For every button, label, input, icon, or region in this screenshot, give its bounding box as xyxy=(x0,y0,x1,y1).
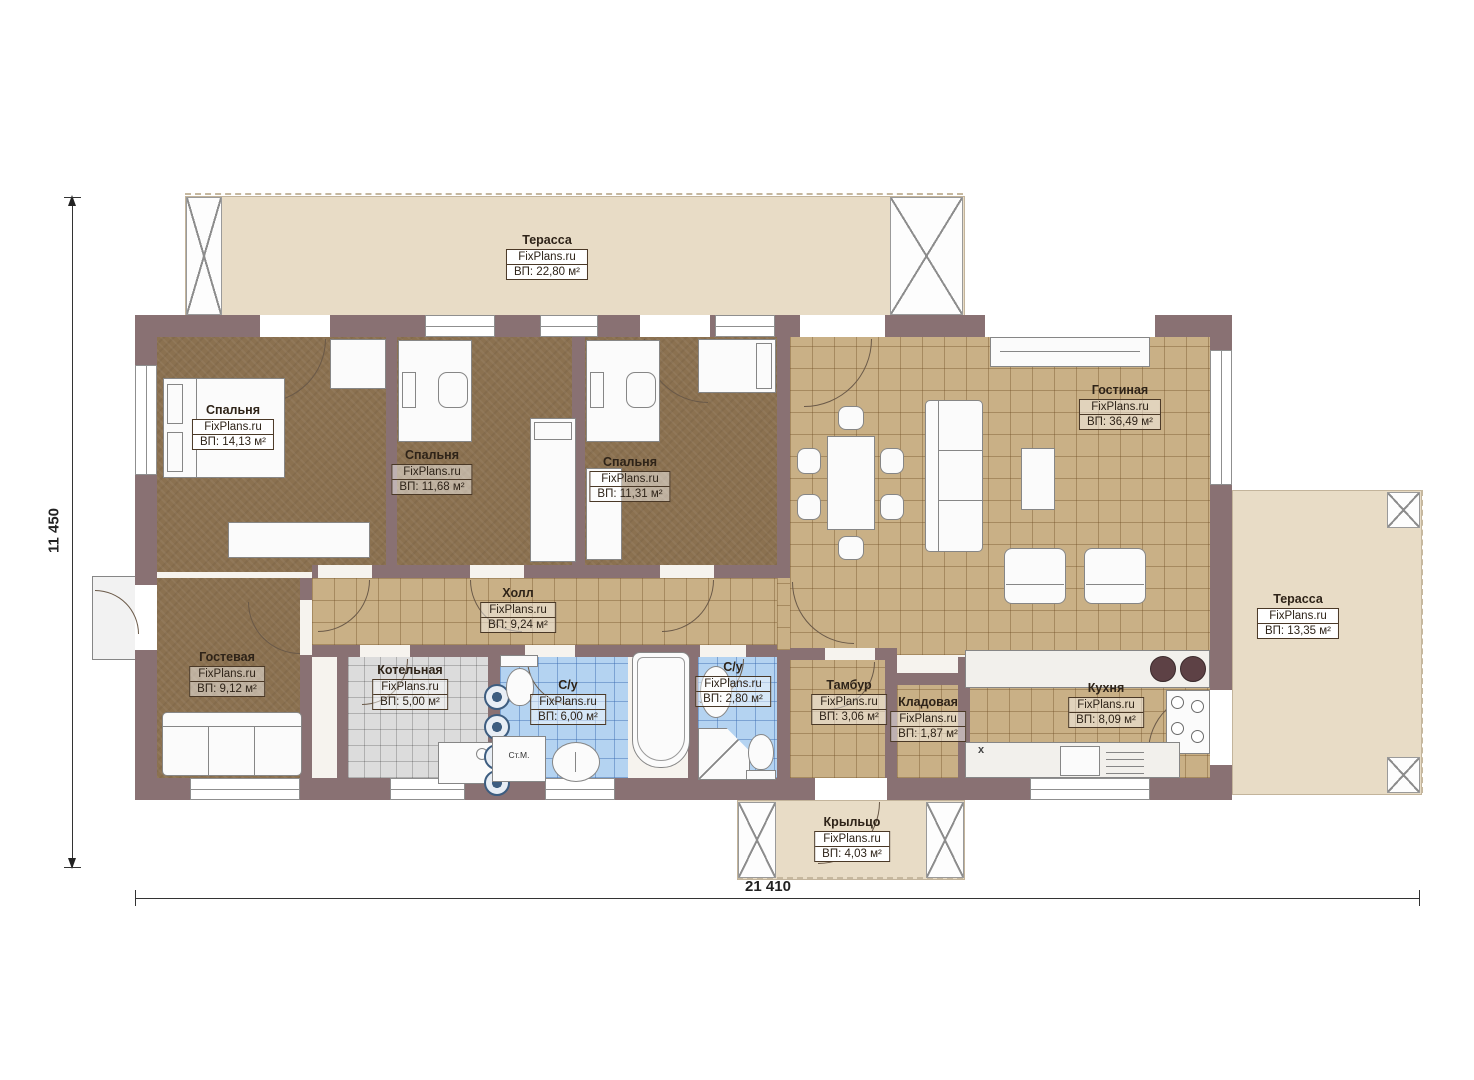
bed-pillow xyxy=(756,343,772,389)
room-name: Терасса xyxy=(1257,592,1339,606)
monitor xyxy=(590,372,604,408)
room-area: ВП: 13,35 м² xyxy=(1258,624,1338,638)
window xyxy=(715,315,775,337)
desk-chair xyxy=(626,372,656,408)
room-area: ВП: 2,80 м² xyxy=(696,692,770,706)
dining-chair xyxy=(880,494,904,520)
armchair-line xyxy=(1006,584,1064,585)
dining-chair xyxy=(797,448,821,474)
room-name: Гостиная xyxy=(1079,383,1161,397)
room-name: Крыльцо xyxy=(814,815,890,829)
bathtub-inner xyxy=(637,657,685,761)
room-label-bedroom2: Спальня FixPlans.ruВП: 11,68 м² xyxy=(391,448,472,495)
room-area: ВП: 3,06 м² xyxy=(812,710,886,724)
room-site: FixPlans.ru xyxy=(481,603,555,618)
room-site: FixPlans.ru xyxy=(507,250,587,265)
room-area: ВП: 22,80 м² xyxy=(507,265,587,279)
room-area: ВП: 36,49 м² xyxy=(1080,415,1160,429)
room-label-boiler: Котельная FixPlans.ruВП: 5,00 м² xyxy=(372,663,448,710)
window xyxy=(540,315,598,337)
entrance-door-opening xyxy=(815,778,887,800)
room-area: ВП: 11,68 м² xyxy=(392,480,471,494)
shelf-lines xyxy=(1106,748,1144,774)
toilet-bowl xyxy=(748,734,774,770)
kitchen-sink-bowl xyxy=(1150,656,1176,682)
armchair-line xyxy=(1086,584,1144,585)
stove-burner xyxy=(1191,730,1204,743)
media-console-line xyxy=(1000,351,1140,352)
washing-machine-label: Ст.М. xyxy=(496,750,542,760)
terrace-door-opening xyxy=(260,315,330,337)
dining-chair xyxy=(838,406,864,430)
armchair xyxy=(1084,548,1146,604)
room-name: Холл xyxy=(480,586,556,600)
terrace-door-opening xyxy=(1210,690,1232,765)
dimension-tick xyxy=(1419,890,1420,906)
room-label-bath2: С/у FixPlans.ruВП: 2,80 м² xyxy=(695,660,771,707)
terrace-post xyxy=(1387,757,1420,793)
floor-plan: 11 450 21 410 xyxy=(0,0,1474,1080)
stove-burner xyxy=(1191,700,1204,713)
terrace-door-opening xyxy=(800,315,885,337)
room-area: ВП: 6,00 м² xyxy=(531,710,605,724)
wardrobe xyxy=(330,339,386,389)
media-console xyxy=(990,337,1150,367)
sofa xyxy=(925,400,983,552)
sofa-cushion-line xyxy=(208,727,209,775)
toilet-tank xyxy=(500,655,538,667)
room-label-tambour: Тамбур FixPlans.ruВП: 3,06 м² xyxy=(811,678,887,725)
marker-x: x xyxy=(978,744,984,756)
room-area: ВП: 9,24 м² xyxy=(481,618,555,632)
room-label-guest: Гостевая FixPlans.ruВП: 9,12 м² xyxy=(189,650,265,697)
door-opening xyxy=(360,645,410,657)
room-area: ВП: 8,09 м² xyxy=(1069,713,1143,727)
dimension-tick xyxy=(135,890,136,906)
room-label-bath1: С/у FixPlans.ruВП: 6,00 м² xyxy=(530,678,606,725)
room-site: FixPlans.ru xyxy=(190,667,264,682)
sink-line xyxy=(575,752,576,772)
terrace-right xyxy=(1232,490,1422,795)
room-site: FixPlans.ru xyxy=(1080,400,1160,415)
window xyxy=(1210,350,1232,485)
floor-hall-living-opening xyxy=(777,578,790,650)
bed-pillow xyxy=(167,432,183,472)
dresser xyxy=(228,522,370,558)
window xyxy=(1030,778,1150,800)
desk-chair xyxy=(438,372,468,408)
room-label-porch: Крыльцо FixPlans.ruВП: 4,03 м² xyxy=(814,815,890,862)
room-name: Спальня xyxy=(192,403,274,417)
room-area: ВП: 1,87 м² xyxy=(891,727,965,741)
room-name: Спальня xyxy=(391,448,472,462)
room-site: FixPlans.ru xyxy=(891,712,965,727)
terrace-right-roof-edge xyxy=(1421,490,1423,793)
room-site: FixPlans.ru xyxy=(531,695,605,710)
window xyxy=(190,778,300,800)
dining-table xyxy=(827,436,875,530)
porch-post xyxy=(926,802,964,878)
room-site: FixPlans.ru xyxy=(815,832,889,847)
fireplace-niche xyxy=(985,315,1155,337)
dimension-tick xyxy=(64,197,81,198)
sink xyxy=(552,742,600,782)
entry-door-opening xyxy=(135,585,157,650)
room-name: С/у xyxy=(695,660,771,674)
door-opening xyxy=(700,645,746,657)
dimension-height-label: 11 450 xyxy=(46,491,63,571)
wall xyxy=(777,650,790,778)
room-name: Котельная xyxy=(372,663,448,677)
terrace-door-opening xyxy=(640,315,710,337)
room-area: ВП: 14,13 м² xyxy=(193,435,273,449)
room-site: FixPlans.ru xyxy=(193,420,273,435)
terrace-post xyxy=(890,197,963,315)
door-opening xyxy=(825,648,875,660)
sofa-back-line xyxy=(163,726,301,727)
sofa-cushion-line xyxy=(938,450,982,451)
sofa-cushion-line xyxy=(254,727,255,775)
terrace-top-roof-edge xyxy=(185,193,963,195)
room-area: ВП: 4,03 м² xyxy=(815,847,889,861)
window xyxy=(135,365,157,475)
dining-chair xyxy=(797,494,821,520)
sofa-back-line xyxy=(938,401,939,551)
coffee-table xyxy=(1021,448,1055,510)
wall xyxy=(897,673,958,685)
monitor xyxy=(402,372,416,408)
door-opening xyxy=(318,565,372,578)
terrace-post xyxy=(1387,492,1420,528)
room-site: FixPlans.ru xyxy=(590,472,669,487)
dimension-line-vertical xyxy=(72,197,73,868)
sofa xyxy=(162,712,302,776)
room-name: С/у xyxy=(530,678,606,692)
room-site: FixPlans.ru xyxy=(812,695,886,710)
room-area: ВП: 11,31 м² xyxy=(590,487,669,501)
window xyxy=(425,315,495,337)
bed-pillow xyxy=(167,384,183,424)
room-site: FixPlans.ru xyxy=(1258,609,1338,624)
door-opening xyxy=(660,565,714,578)
room-name: Спальня xyxy=(589,455,670,469)
door-opening xyxy=(470,565,524,578)
room-name: Гостевая xyxy=(189,650,265,664)
room-site: FixPlans.ru xyxy=(696,677,770,692)
door-opening xyxy=(300,600,312,655)
fridge xyxy=(1060,746,1100,776)
dimension-line-horizontal xyxy=(135,898,1420,899)
bed-pillow xyxy=(534,422,572,440)
wall xyxy=(337,657,348,778)
room-name: Кухня xyxy=(1068,681,1144,695)
room-label-hall: Холл FixPlans.ruВП: 9,24 м² xyxy=(480,586,556,633)
room-site: FixPlans.ru xyxy=(392,465,471,480)
armchair xyxy=(1004,548,1066,604)
room-label-bedroom1: Спальня FixPlans.ruВП: 14,13 м² xyxy=(192,403,274,450)
toilet-tank xyxy=(746,770,776,780)
room-label-kitchen: Кухня FixPlans.ruВП: 8,09 м² xyxy=(1068,681,1144,728)
room-name: Кладовая xyxy=(890,695,966,709)
room-label-terrace-top: Терасса FixPlans.ruВП: 22,80 м² xyxy=(506,233,588,280)
room-label-storage: Кладовая FixPlans.ruВП: 1,87 м² xyxy=(890,695,966,742)
dimension-width-label: 21 410 xyxy=(718,878,818,895)
stove-burner xyxy=(1171,696,1184,709)
sofa-cushion-line xyxy=(938,500,982,501)
wall xyxy=(777,337,790,578)
room-name: Тамбур xyxy=(811,678,887,692)
terrace-post xyxy=(186,197,222,315)
room-site: FixPlans.ru xyxy=(373,680,447,695)
stove-burner xyxy=(1171,722,1184,735)
room-area: ВП: 9,12 м² xyxy=(190,682,264,696)
dimension-tick xyxy=(64,867,81,868)
porch-post xyxy=(738,802,776,878)
room-label-bedroom3: Спальня FixPlans.ruВП: 11,31 м² xyxy=(589,455,670,502)
room-label-terrace-right: Терасса FixPlans.ruВП: 13,35 м² xyxy=(1257,592,1339,639)
kitchen-sink-bowl xyxy=(1180,656,1206,682)
room-area: ВП: 5,00 м² xyxy=(373,695,447,709)
room-name: Терасса xyxy=(506,233,588,247)
room-site: FixPlans.ru xyxy=(1069,698,1143,713)
dining-chair xyxy=(838,536,864,560)
room-label-living: Гостиная FixPlans.ruВП: 36,49 м² xyxy=(1079,383,1161,430)
dining-chair xyxy=(880,448,904,474)
